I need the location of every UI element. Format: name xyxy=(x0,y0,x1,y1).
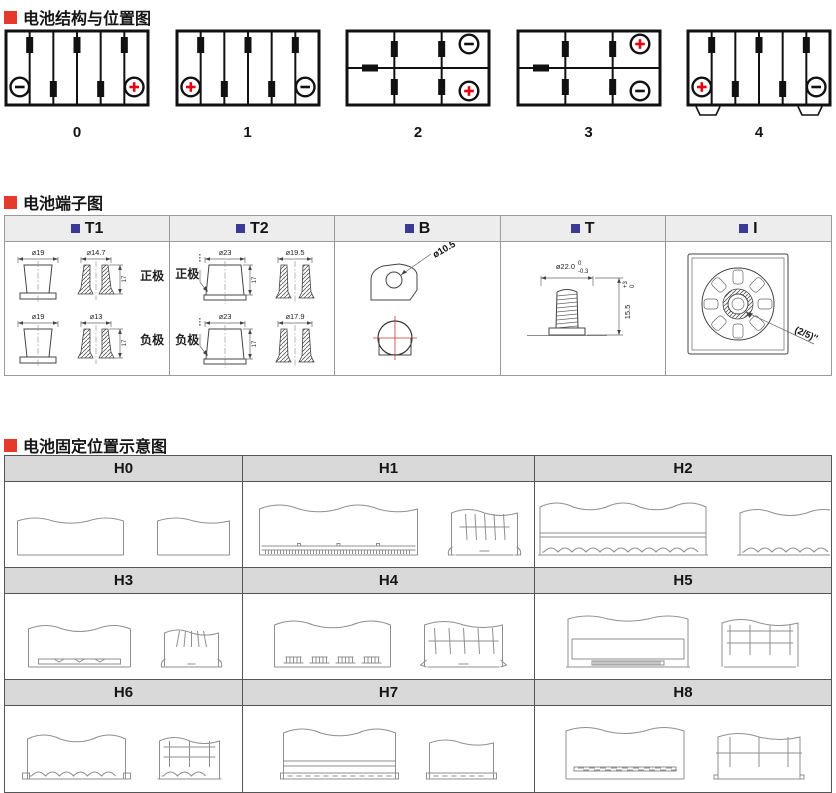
terminal-b-drawing: ø10.5 xyxy=(335,242,499,375)
terminal-section-title: 电池端子图 xyxy=(4,190,103,214)
svg-text:17: 17 xyxy=(122,275,128,282)
t2-negative-label: 负极 xyxy=(175,334,199,346)
red-square-icon xyxy=(4,11,17,24)
svg-text:15.5: 15.5 xyxy=(623,305,632,320)
terminal-header-t2: T2 xyxy=(170,216,335,242)
svg-text:ø10.5: ø10.5 xyxy=(431,242,458,261)
holddown-cell-h5 xyxy=(535,594,831,680)
svg-text:⌀23: ⌀23 xyxy=(219,248,232,257)
red-square-icon xyxy=(4,196,17,209)
red-square-icon xyxy=(4,439,17,452)
terminal-header-t1: T1 xyxy=(5,216,170,242)
terminal-t1-drawing: ⌀19⌀14.717⌀19⌀1317 xyxy=(5,242,169,375)
diagram-label-3: 3 xyxy=(516,124,662,141)
holddown-section-title: 电池固定位置示意图 xyxy=(4,433,167,457)
svg-text:⌀19.5: ⌀19.5 xyxy=(286,248,305,257)
terminal-header-t1-label: T1 xyxy=(85,220,104,238)
svg-text:⌀14.7: ⌀14.7 xyxy=(86,248,105,257)
holddown-header-h2: H2 xyxy=(535,456,831,482)
battery-structure-diagram-3 xyxy=(516,29,662,119)
svg-text:⌀19: ⌀19 xyxy=(32,248,45,257)
holddown-cell-h1 xyxy=(243,482,535,568)
svg-text:17: 17 xyxy=(122,339,128,346)
holddown-sketch-h4 xyxy=(244,595,533,679)
terminal-cell-i: (2/5)″ xyxy=(666,242,831,375)
terminal-table: T1 T2 B T I ⌀19⌀14.717⌀19⌀1317 正极 负极 ⌀23… xyxy=(4,215,832,376)
terminal-header-b-label: B xyxy=(419,220,431,238)
holddown-cell-h8 xyxy=(535,706,831,792)
terminal-cell-t1: ⌀19⌀14.717⌀19⌀1317 正极 负极 xyxy=(5,242,170,375)
battery-diagrams-row xyxy=(4,29,832,119)
svg-text:-0.3: -0.3 xyxy=(578,269,589,275)
svg-text:ø22.0: ø22.0 xyxy=(555,262,574,271)
battery-diagram-labels: 0 1 2 3 4 xyxy=(4,124,832,141)
svg-text:+3: +3 xyxy=(623,280,629,288)
diagram-label-1: 1 xyxy=(175,124,321,141)
svg-text:⌀19: ⌀19 xyxy=(32,312,45,321)
diagram-label-4: 4 xyxy=(686,124,832,141)
holddown-sketch-h7 xyxy=(244,707,533,791)
holddown-header-h5: H5 xyxy=(535,568,831,594)
structure-section-title-text: 电池结构与位置图 xyxy=(23,5,151,29)
terminal-cell-t: ø22.00-0.315.5+30 xyxy=(501,242,666,375)
holddown-header-h6: H6 xyxy=(5,680,243,706)
holddown-sketch-h6 xyxy=(6,707,241,791)
holddown-header-h7: H7 xyxy=(243,680,535,706)
svg-text:0: 0 xyxy=(578,261,582,267)
holddown-cell-h3 xyxy=(5,594,243,680)
holddown-header-h3: H3 xyxy=(5,568,243,594)
holddown-header-h0: H0 xyxy=(5,456,243,482)
terminal-section-title-text: 电池端子图 xyxy=(23,190,103,214)
terminal-cell-t2: ⌀2317⌀19.5⌀2317⌀17.9 正极 负极 xyxy=(170,242,335,375)
holddown-sketch-h1 xyxy=(244,483,533,567)
holddown-cell-h7 xyxy=(243,706,535,792)
holddown-cell-h6 xyxy=(5,706,243,792)
blue-square-icon xyxy=(236,224,245,233)
battery-structure-diagram-4 xyxy=(686,29,832,119)
diagram-label-2: 2 xyxy=(345,124,491,141)
blue-square-icon xyxy=(739,224,748,233)
holddown-sketch-h5 xyxy=(536,595,830,679)
svg-text:0: 0 xyxy=(630,284,636,288)
terminal-header-b: B xyxy=(335,216,500,242)
t2-positive-label: 正极 xyxy=(175,268,199,280)
holddown-table: H0 H1 H2 H3 H4 H5 H6 H7 H8 xyxy=(4,455,832,793)
terminal-i-drawing: (2/5)″ xyxy=(666,242,830,375)
t1-negative-label: 负极 xyxy=(140,334,164,346)
svg-text:⌀17.9: ⌀17.9 xyxy=(286,312,305,321)
holddown-section-title-text: 电池固定位置示意图 xyxy=(23,433,167,457)
diagram-label-0: 0 xyxy=(4,124,150,141)
holddown-header-h1: H1 xyxy=(243,456,535,482)
holddown-cell-h0 xyxy=(5,482,243,568)
svg-text:17: 17 xyxy=(252,340,258,347)
holddown-sketch-h2 xyxy=(536,483,830,567)
holddown-cell-h4 xyxy=(243,594,535,680)
terminal-header-i-label: I xyxy=(753,220,757,238)
battery-structure-diagram-2 xyxy=(345,29,491,119)
holddown-header-h8: H8 xyxy=(535,680,831,706)
blue-square-icon xyxy=(571,224,580,233)
terminal-t2-drawing: ⌀2317⌀19.5⌀2317⌀17.9 xyxy=(170,242,334,375)
svg-text:⌀23: ⌀23 xyxy=(219,312,232,321)
battery-structure-diagram-0 xyxy=(4,29,150,119)
terminal-header-i: I xyxy=(666,216,831,242)
blue-square-icon xyxy=(71,224,80,233)
holddown-sketch-h3 xyxy=(6,595,241,679)
svg-text:⌀13: ⌀13 xyxy=(90,312,103,321)
t1-positive-label: 正极 xyxy=(140,270,164,282)
terminal-cell-b: ø10.5 xyxy=(335,242,500,375)
blue-square-icon xyxy=(405,224,414,233)
terminal-header-t-label: T xyxy=(585,220,595,238)
structure-section-title: 电池结构与位置图 xyxy=(4,5,151,29)
terminal-header-t: T xyxy=(501,216,666,242)
holddown-sketch-h0 xyxy=(6,483,241,567)
holddown-cell-h2 xyxy=(535,482,831,568)
svg-text:17: 17 xyxy=(252,276,258,283)
svg-text:(2/5)″: (2/5)″ xyxy=(793,325,820,345)
terminal-t-drawing: ø22.00-0.315.5+30 xyxy=(501,242,665,375)
battery-structure-diagram-1 xyxy=(175,29,321,119)
holddown-header-h4: H4 xyxy=(243,568,535,594)
holddown-sketch-h8 xyxy=(536,707,830,791)
terminal-header-t2-label: T2 xyxy=(250,220,269,238)
